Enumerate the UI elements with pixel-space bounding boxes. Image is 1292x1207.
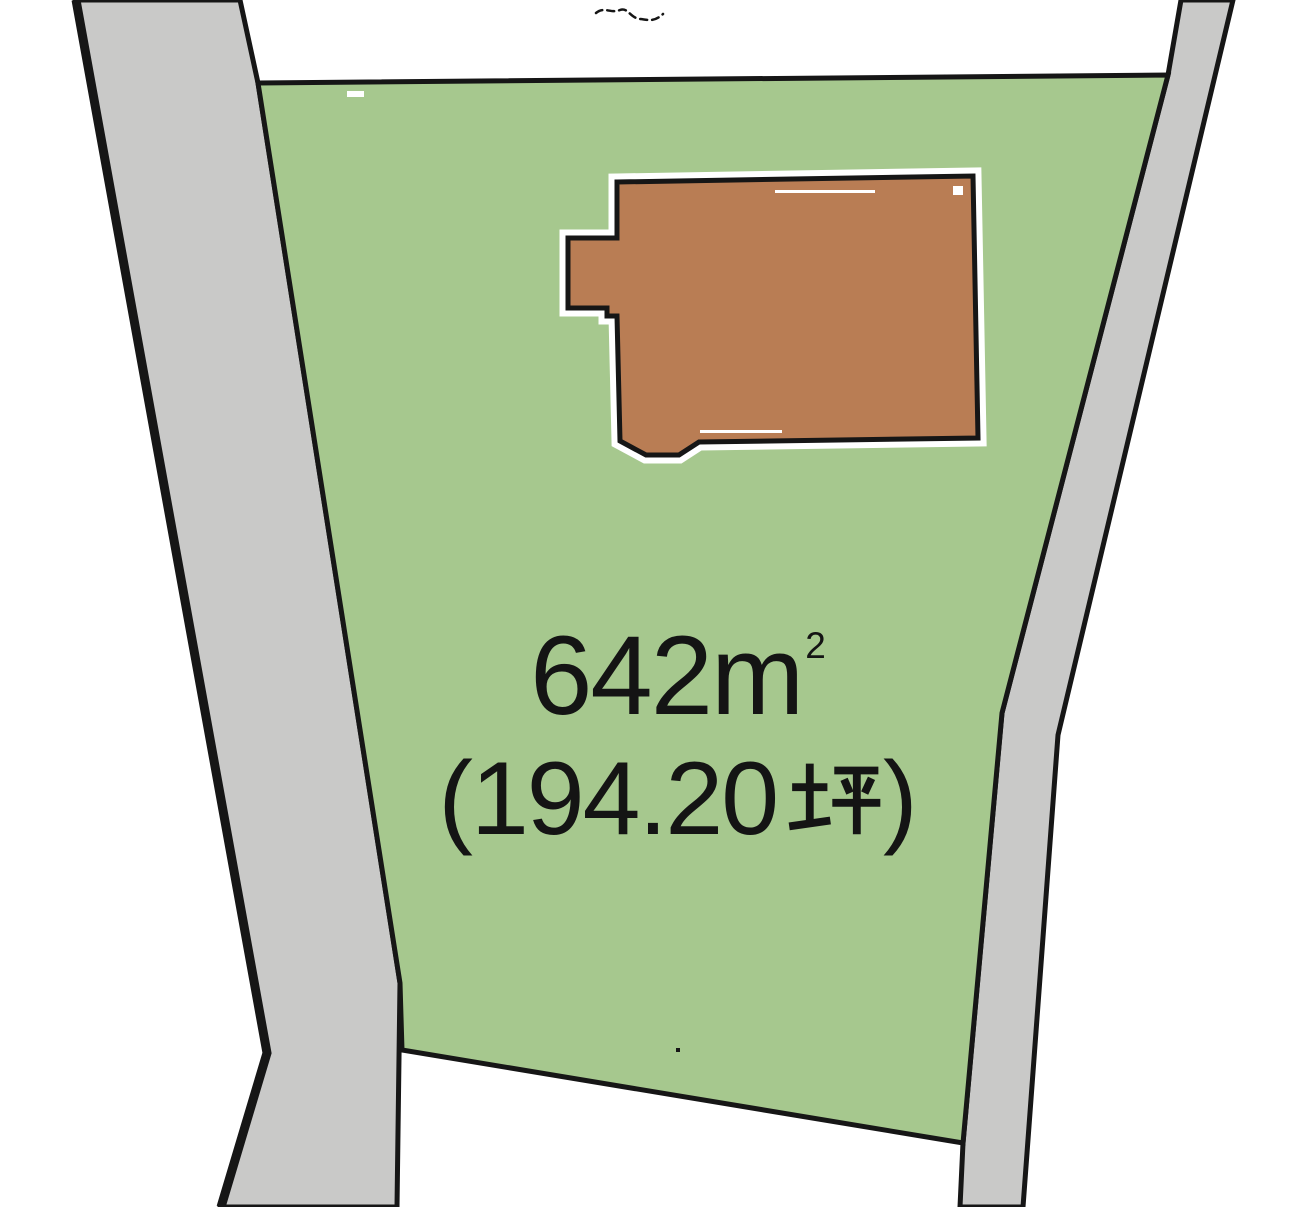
- land-plot-diagram-page: { "diagram": { "title": "land-plot-diagr…: [0, 0, 1292, 1207]
- building-white-dash-top: [775, 190, 875, 193]
- building-white-speck: [953, 186, 963, 195]
- plot-diagram-canvas: [0, 0, 1292, 1207]
- area-tsubo-label: (194.20 ): [438, 746, 915, 851]
- tsubo-kanji-glyph: [783, 746, 881, 844]
- parcel-dark-speck: [676, 1048, 680, 1052]
- area-m2-superscript: 2: [805, 627, 826, 664]
- area-m2-label: 642m2: [530, 620, 826, 732]
- building-footprint: [568, 176, 978, 455]
- diagram-stage: 642m2 (194.20 ): [0, 0, 1292, 1207]
- area-m2-value: 642: [530, 613, 711, 738]
- area-tsubo-value: 194.20: [471, 741, 777, 857]
- area-m2-unit: m: [711, 613, 802, 738]
- area-tsubo-close-paren: ): [883, 741, 916, 857]
- building-white-dash-bottom: [700, 430, 782, 433]
- parcel-white-speck: [347, 91, 364, 97]
- area-tsubo-open-paren: (: [438, 741, 471, 857]
